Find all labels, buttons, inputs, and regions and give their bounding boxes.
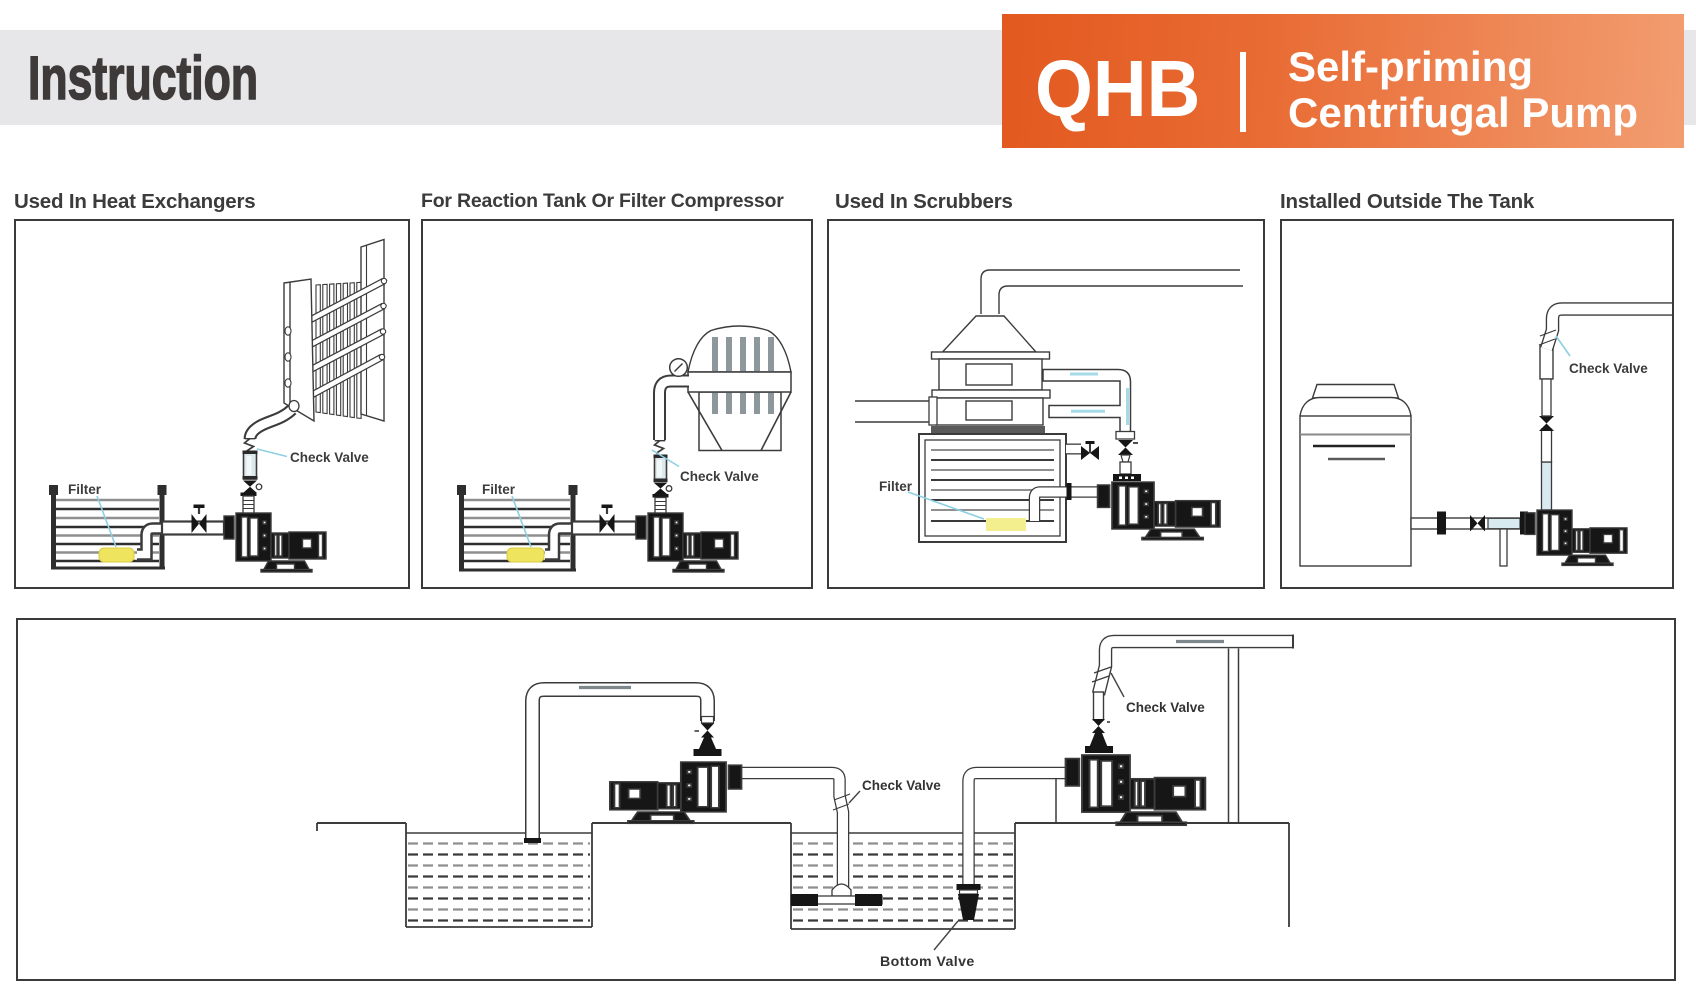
svg-text:Filter: Filter (482, 482, 516, 497)
svg-text:Bottom Valve: Bottom Valve (880, 954, 975, 970)
svg-text:Check Valve: Check Valve (290, 450, 369, 465)
svg-text:Filter: Filter (879, 479, 913, 494)
svg-text:Check Valve: Check Valve (680, 469, 759, 484)
svg-text:Filter: Filter (68, 482, 102, 497)
svg-text:Check Valve: Check Valve (1569, 361, 1648, 376)
svg-text:Check Valve: Check Valve (862, 778, 941, 793)
svg-text:Check Valve: Check Valve (1126, 700, 1205, 715)
